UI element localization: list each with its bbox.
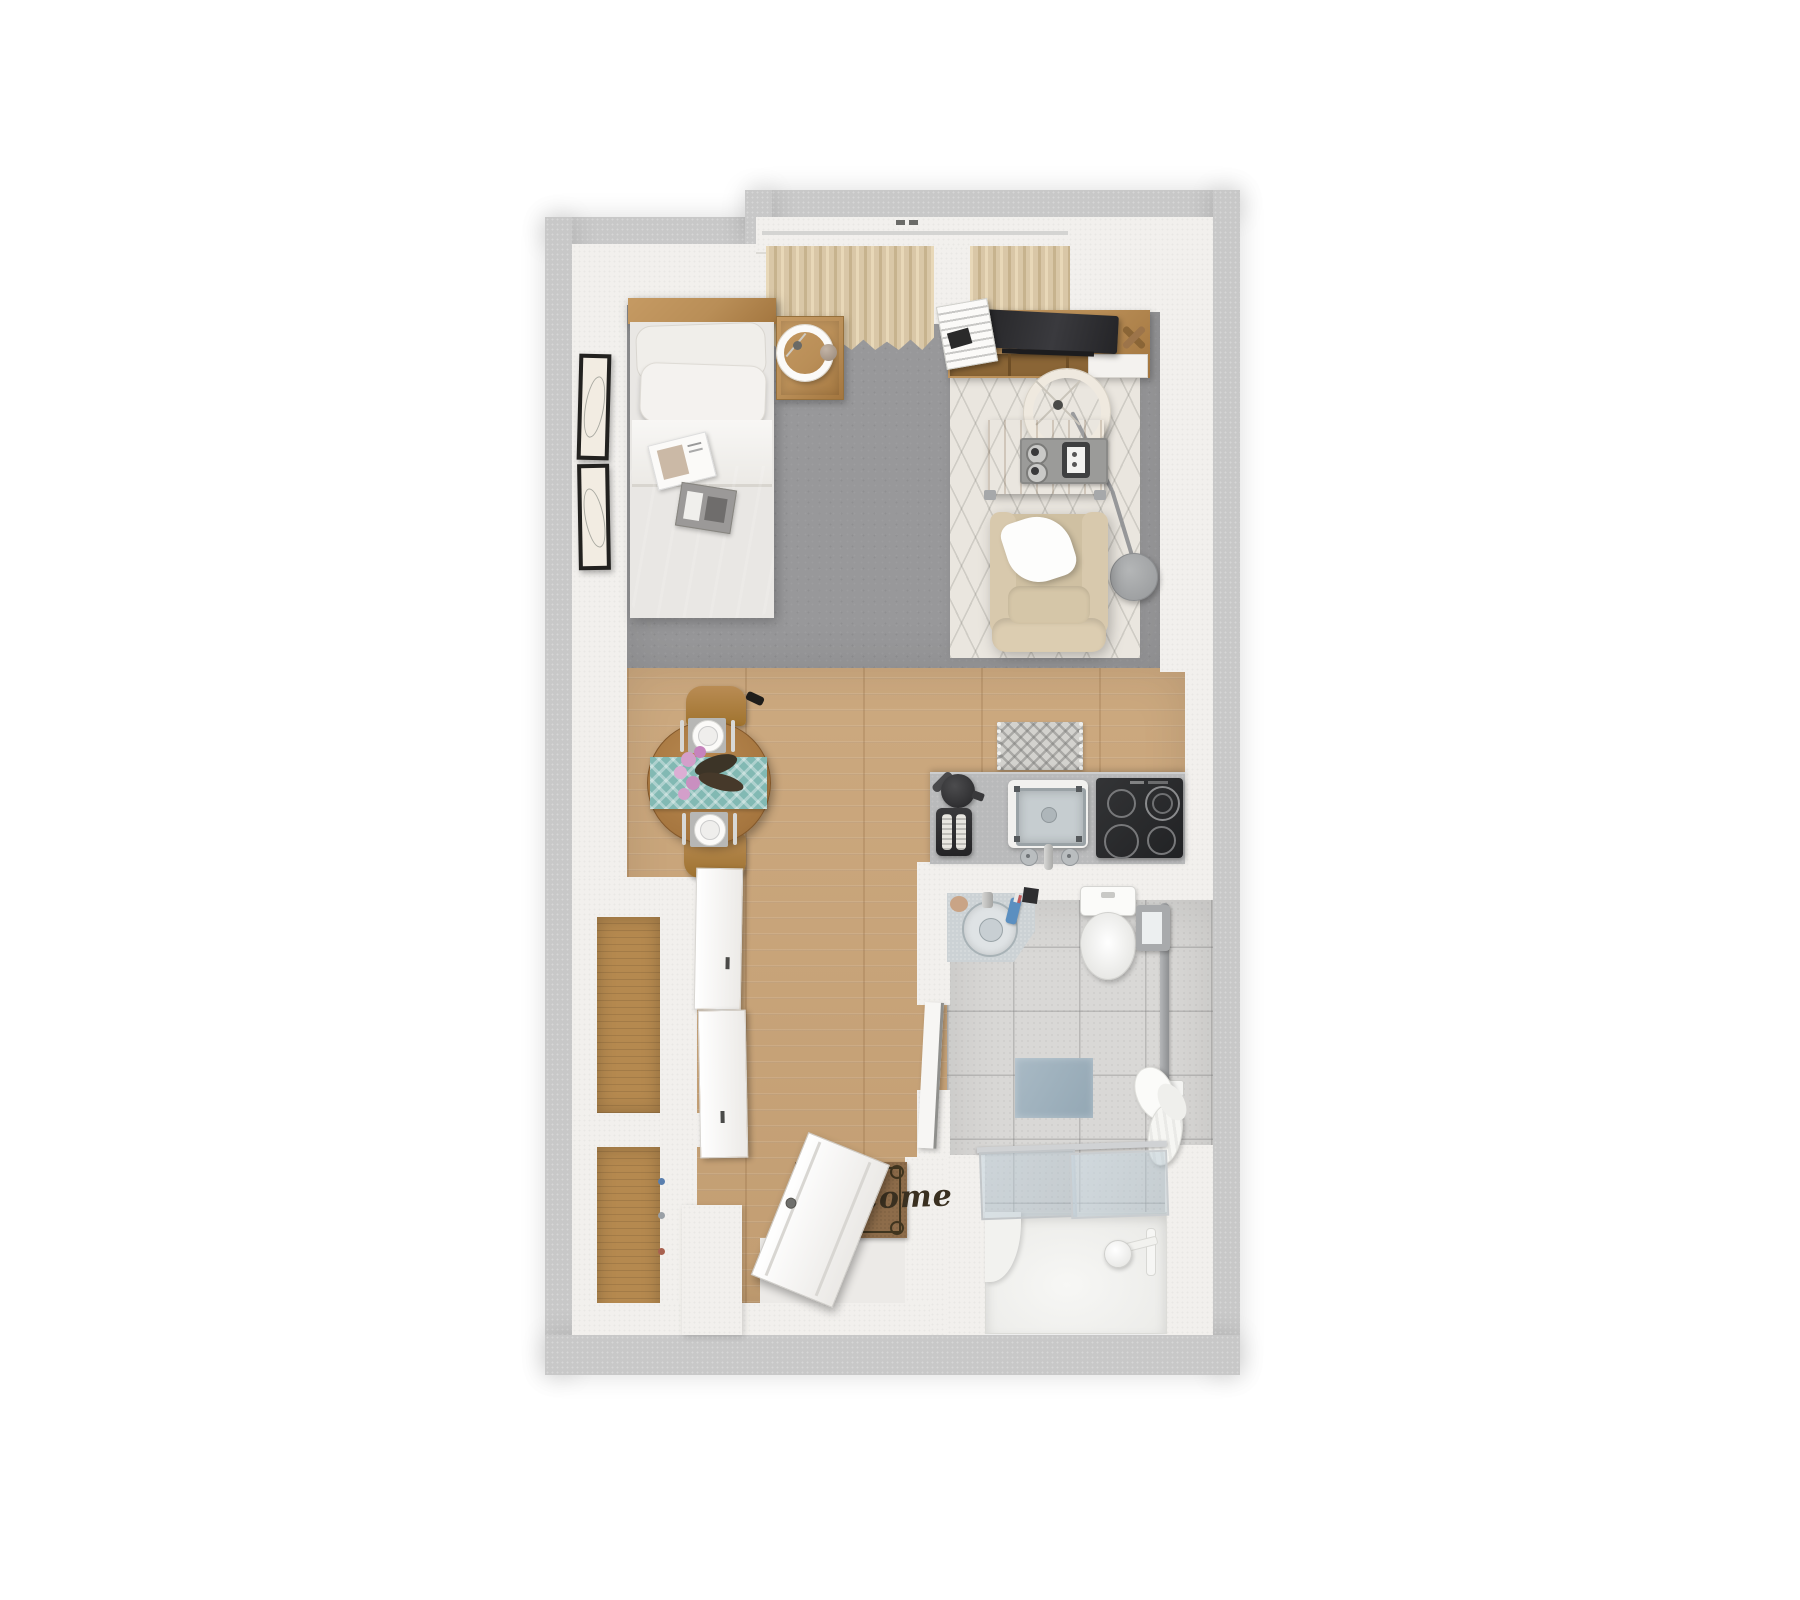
wall-right-living	[1160, 217, 1213, 672]
kitchen-mat	[997, 722, 1083, 770]
wall-dispenser	[1136, 905, 1170, 951]
shower-handle	[1104, 1240, 1132, 1268]
wall-bedroom-top	[572, 244, 768, 305]
fork-icon	[682, 813, 686, 845]
closet-hook-icon	[658, 1178, 665, 1185]
armchair	[990, 512, 1108, 652]
wall-bottom-inner	[572, 1303, 930, 1335]
flower	[694, 746, 706, 758]
burner	[1107, 789, 1136, 818]
magazine-stack	[936, 298, 998, 370]
knife-icon	[731, 720, 735, 752]
picture-frame	[577, 354, 612, 461]
cooktop	[1096, 778, 1183, 858]
knife-icon	[733, 813, 737, 845]
caster-icon	[1094, 490, 1106, 500]
outer-wall-top-right	[756, 190, 1240, 217]
caster-icon	[984, 490, 996, 500]
soap-dish	[1022, 887, 1039, 904]
floor-lamp-base	[1110, 553, 1158, 601]
floor-plan: Welcome	[0, 0, 1800, 1600]
remote-icon	[1062, 442, 1090, 478]
closet-hook-icon	[658, 1248, 665, 1255]
basin-faucet	[982, 892, 993, 908]
glass-panel	[979, 1149, 1077, 1220]
plate	[694, 814, 726, 846]
soap-bar	[950, 896, 968, 912]
closet-upper-floor	[597, 917, 660, 1113]
burner	[1104, 824, 1139, 859]
closet-sliding-door	[698, 1010, 749, 1159]
outer-wall-left	[545, 217, 572, 1375]
fork-icon	[680, 720, 684, 752]
burner	[1145, 786, 1180, 821]
decor-sphere	[820, 344, 837, 361]
window-latch-icon	[909, 220, 918, 225]
bed-headboard	[628, 298, 776, 324]
burner	[1147, 826, 1176, 855]
curtain-rod	[762, 231, 1070, 235]
wall-bathroom-left-upper	[917, 862, 950, 1005]
door-handle-icon	[725, 957, 729, 969]
sink-faucet	[1044, 844, 1053, 870]
cup-icon	[1026, 462, 1048, 484]
wall-left-lower	[572, 877, 597, 1320]
console-cabinet	[1088, 354, 1148, 378]
picture-frame	[577, 464, 611, 571]
kitchen-sink	[1008, 780, 1088, 848]
bed	[628, 298, 776, 620]
flower	[686, 776, 700, 790]
closet-hook-icon	[658, 1212, 665, 1219]
shower-right-wall	[1165, 1145, 1213, 1335]
magazine	[675, 482, 737, 534]
entry-partition-wall	[682, 1205, 742, 1335]
closet-lower-floor	[597, 1147, 660, 1320]
flower	[674, 766, 687, 779]
door-handle-icon	[720, 1111, 724, 1123]
faucet-knob	[1020, 848, 1038, 866]
shower-glass-doors	[977, 1141, 1169, 1222]
toaster	[936, 808, 972, 856]
outer-wall-right	[1213, 190, 1240, 1375]
bath-mat	[1015, 1058, 1093, 1118]
bed-pillow	[639, 362, 767, 426]
seat-cushion	[1008, 586, 1090, 624]
window-latch-icon	[896, 220, 905, 225]
frame-art	[581, 468, 607, 566]
outer-wall-top-left	[545, 217, 772, 244]
outer-wall-bottom	[545, 1335, 1240, 1375]
serving-tray	[1020, 438, 1108, 484]
glass-panel	[1069, 1150, 1169, 1219]
faucet-knob	[1061, 848, 1079, 866]
closet-sliding-door	[694, 868, 743, 1011]
kettle	[941, 774, 975, 808]
flower	[678, 788, 690, 800]
frame-art	[581, 358, 608, 457]
